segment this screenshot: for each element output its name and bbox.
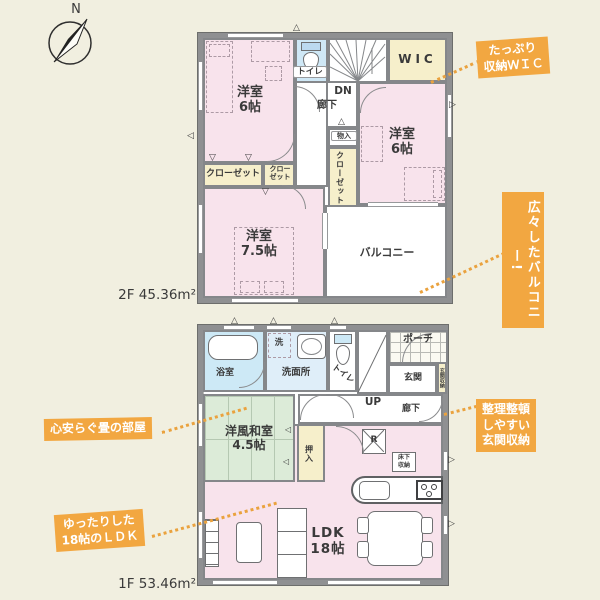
room-label-entrance: 玄関: [399, 373, 427, 384]
vent-marker-icon: ▷: [448, 520, 455, 529]
closet-door-marker-icon: ▽: [245, 154, 252, 163]
window: [198, 62, 203, 110]
pillow-icon: [240, 281, 260, 293]
floorplan-image: N: [0, 0, 600, 600]
sink-bowl-icon: [301, 338, 322, 355]
winder-stairs-icon: [330, 40, 386, 81]
burner-icon: [431, 484, 437, 490]
window-marker-icon: △: [270, 317, 277, 326]
room-label-bath: 浴室: [210, 368, 240, 379]
stairs-up-label: UP: [360, 396, 386, 408]
room-label-balcony: バルコニー: [356, 247, 418, 260]
callout-entrance: 整理整頓 しやすい 玄関収納: [476, 399, 536, 452]
room-label-oshiire: 押入: [304, 440, 313, 468]
room-label-entrance-storage: 玄関収納: [438, 364, 444, 392]
compass-north-label: N: [66, 2, 86, 17]
callout-ldk: ゆったりした 18帖のＬＤＫ: [54, 509, 145, 552]
room-label-bedroom-bottom: 洋室 7.5帖: [228, 229, 290, 260]
leader-entrance: [444, 405, 478, 416]
floor2-area-label: 2F 45.36m²: [100, 288, 196, 304]
chair-icon: [421, 541, 433, 558]
window: [224, 325, 254, 330]
closet-door-marker-icon: ▽: [209, 154, 216, 163]
bathtub-icon: [208, 335, 258, 360]
toilet-tank-icon: [301, 42, 321, 51]
pillow-icon: [264, 281, 284, 293]
vent-marker-icon: ▷: [449, 101, 456, 110]
room-label-storage: 物入: [331, 131, 357, 141]
room-label-closet-small: クロー ゼット: [266, 165, 294, 182]
washer-label: 洗: [270, 338, 288, 348]
window: [322, 213, 328, 249]
pillow-icon: [209, 44, 230, 57]
window: [198, 205, 203, 253]
sofa-icon: [205, 519, 219, 567]
room-label-closet-left: クローゼット: [206, 169, 260, 180]
floor-storage-label: 床下 収納: [392, 454, 416, 469]
callout-wic: たっぷり 収納ＷＩＣ: [476, 37, 550, 79]
toilet-tank-icon: [334, 334, 352, 344]
compass-icon: [44, 10, 98, 68]
room-label-washroom: 洗面所: [277, 367, 315, 378]
window: [328, 580, 420, 585]
stove-icon: [416, 480, 443, 500]
floor1-area-label: 1F 53.46m²: [98, 577, 196, 593]
room-label-hallway: 廊下: [312, 100, 342, 112]
chair-icon: [421, 517, 433, 534]
room-label-closet-center: クローゼット: [335, 150, 344, 206]
floor2-stairs: [328, 38, 388, 83]
room-label-porch: ポーチ: [400, 334, 436, 346]
window: [228, 33, 283, 38]
pillow-icon: [433, 170, 442, 198]
room-label-ldk: LDK 18帖: [297, 526, 359, 558]
window: [213, 580, 277, 585]
vent-marker-icon: ◁: [187, 132, 194, 141]
window: [368, 202, 438, 207]
closet-door-marker-icon: ▽: [262, 188, 269, 197]
room-label-hallway: 廊下: [396, 404, 426, 415]
room-label-wic: WIC: [390, 52, 445, 66]
room-label-washitsu: 洋風和室 4.5帖: [217, 424, 281, 452]
window-marker-icon: △: [231, 317, 238, 326]
window-marker-icon: △: [331, 317, 338, 326]
chair-icon: [265, 66, 282, 81]
desk-icon: [251, 41, 290, 62]
coffee-table-icon: [236, 522, 262, 563]
window: [198, 404, 203, 446]
kitchen-sink-icon: [359, 481, 390, 500]
room-label-toilet: トイレ: [293, 66, 327, 78]
callout-balcony: 広々したバルコニー!: [502, 192, 544, 328]
room-label-bedroom-right: 洋室 6帖: [372, 127, 432, 158]
window: [232, 298, 298, 303]
window: [198, 512, 203, 558]
callout-tatami: 心安らぐ畳の部屋: [44, 417, 152, 440]
closet-door-marker-icon: △: [338, 118, 345, 127]
burner-icon: [421, 484, 427, 490]
fridge-label: R: [362, 435, 386, 446]
dining-table-icon: [367, 511, 423, 566]
burner-icon: [426, 491, 432, 497]
sliding-door-marker-icon: ◁: [285, 426, 291, 434]
room-label-bedroom-topleft: 洋室 6帖: [215, 85, 285, 116]
window-marker-icon: △: [293, 24, 300, 33]
vent-marker-icon: ▷: [448, 456, 455, 465]
sliding-door-marker-icon: ◁: [283, 458, 289, 466]
stairs-dn-label: DN: [330, 85, 356, 97]
